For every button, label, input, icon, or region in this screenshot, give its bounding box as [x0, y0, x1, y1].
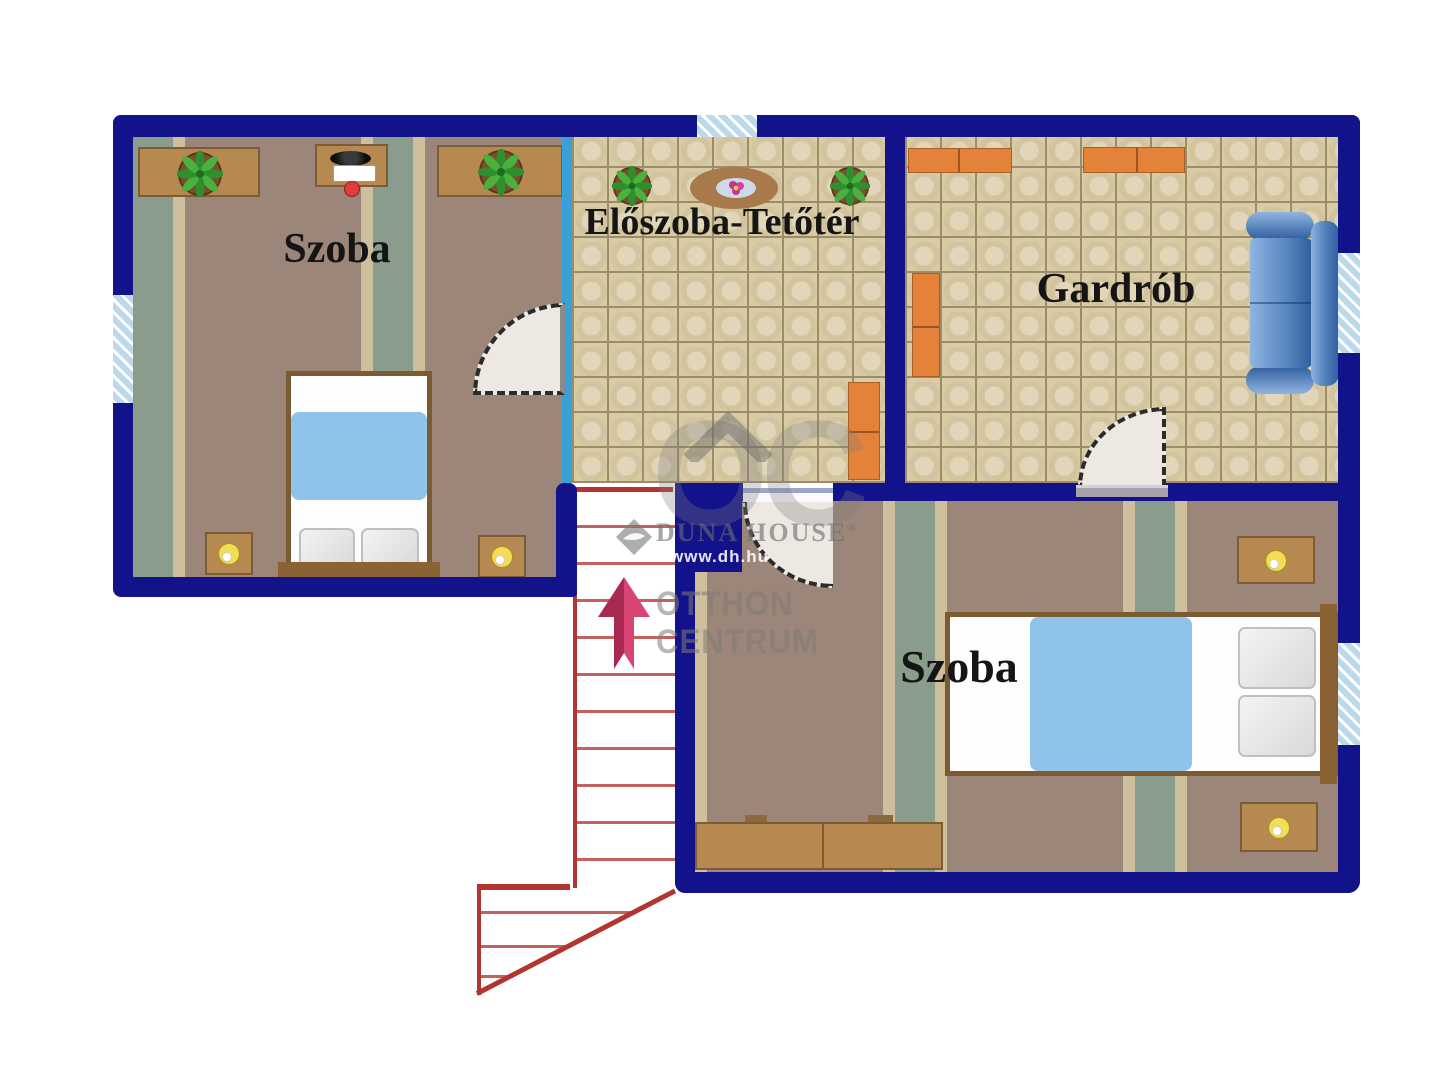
- lamp-icon: [218, 543, 240, 565]
- room1-label: Szoba: [197, 227, 477, 271]
- wardrobe-cabinet: [1083, 147, 1185, 173]
- cabinet-divider: [849, 431, 879, 433]
- stair-step: [577, 858, 675, 861]
- stair-landing-edge: [477, 884, 570, 890]
- bed-headboard: [1320, 604, 1337, 784]
- nightstand: [205, 532, 253, 575]
- potted-plant-icon: [612, 166, 652, 206]
- bed-blanket: [1030, 617, 1192, 771]
- room1-window: [113, 295, 133, 403]
- hall-wardrobe-divider-wall: [885, 137, 905, 483]
- bed-pillow: [1238, 695, 1316, 757]
- lamp-icon: [1268, 817, 1290, 839]
- stair-step: [577, 747, 675, 750]
- lamp-icon: [1265, 550, 1287, 572]
- sofa-armrest: [1246, 212, 1314, 240]
- stair-step: [481, 911, 636, 914]
- floor-plan: Szoba Előszoba-Tetőtér Gardrób Szoba OC …: [0, 0, 1446, 1080]
- wardrobe-label: Gardrób: [966, 267, 1266, 311]
- potted-plant-icon: [830, 166, 870, 206]
- stair-step: [577, 784, 675, 787]
- wardrobe-cabinet: [912, 273, 940, 377]
- bed-pillow: [1238, 627, 1316, 689]
- wardrobe-door-leaf: [1076, 485, 1168, 497]
- hat-icon: [330, 151, 371, 166]
- stair-landing-side: [477, 884, 481, 995]
- double-bed: [945, 612, 1338, 776]
- stairs-up-arrow-icon: [598, 577, 650, 669]
- stair-step: [577, 821, 675, 824]
- stair-step: [577, 673, 675, 676]
- duna-house-logo-icon: [614, 517, 654, 557]
- wardrobe-cabinet: [908, 148, 1012, 173]
- hallway-label: Előszoba-Tetőtér: [542, 203, 902, 243]
- stair-step: [481, 945, 571, 948]
- room1-bottom-wall: [113, 577, 577, 597]
- hallway-cabinet: [848, 382, 880, 480]
- bed-headboard: [278, 562, 440, 578]
- stair-step: [577, 562, 675, 565]
- room2-window: [1338, 643, 1360, 745]
- hallway-window: [697, 115, 757, 137]
- flower-icon: [725, 178, 747, 198]
- stair-step: [481, 975, 513, 978]
- lamp-icon: [491, 546, 513, 568]
- room1-east-wall-stub: [556, 483, 577, 597]
- double-bed: [286, 371, 432, 576]
- cabinet-divider: [913, 326, 939, 328]
- room2-label: Szoba: [809, 643, 1109, 691]
- cabinet-divider: [1136, 148, 1138, 172]
- potted-plant-icon: [177, 151, 223, 197]
- wardrobe-window: [1338, 253, 1360, 353]
- cabinet-divider: [958, 149, 960, 172]
- sofa-armrest: [1246, 366, 1314, 394]
- bed-blanket: [291, 412, 427, 500]
- dresser-divider: [822, 824, 824, 868]
- room2-left-wall: [675, 483, 695, 893]
- stair-step: [577, 525, 675, 528]
- mouse-icon: [344, 181, 360, 197]
- potted-plant-icon: [478, 149, 524, 195]
- low-dresser: [695, 822, 943, 870]
- nightstand: [1237, 536, 1315, 584]
- outer-wall-right: [1338, 115, 1360, 893]
- nightstand: [478, 535, 526, 578]
- stair-step: [577, 710, 675, 713]
- room2-door-leaf: [743, 488, 833, 502]
- stair-diagonal-rail: [476, 889, 676, 996]
- room2-bottom-wall: [675, 872, 1360, 893]
- laptop-icon: [333, 165, 376, 182]
- nightstand: [1240, 802, 1318, 852]
- sofa-backrest: [1311, 221, 1339, 386]
- stair-top-edge: [573, 487, 673, 492]
